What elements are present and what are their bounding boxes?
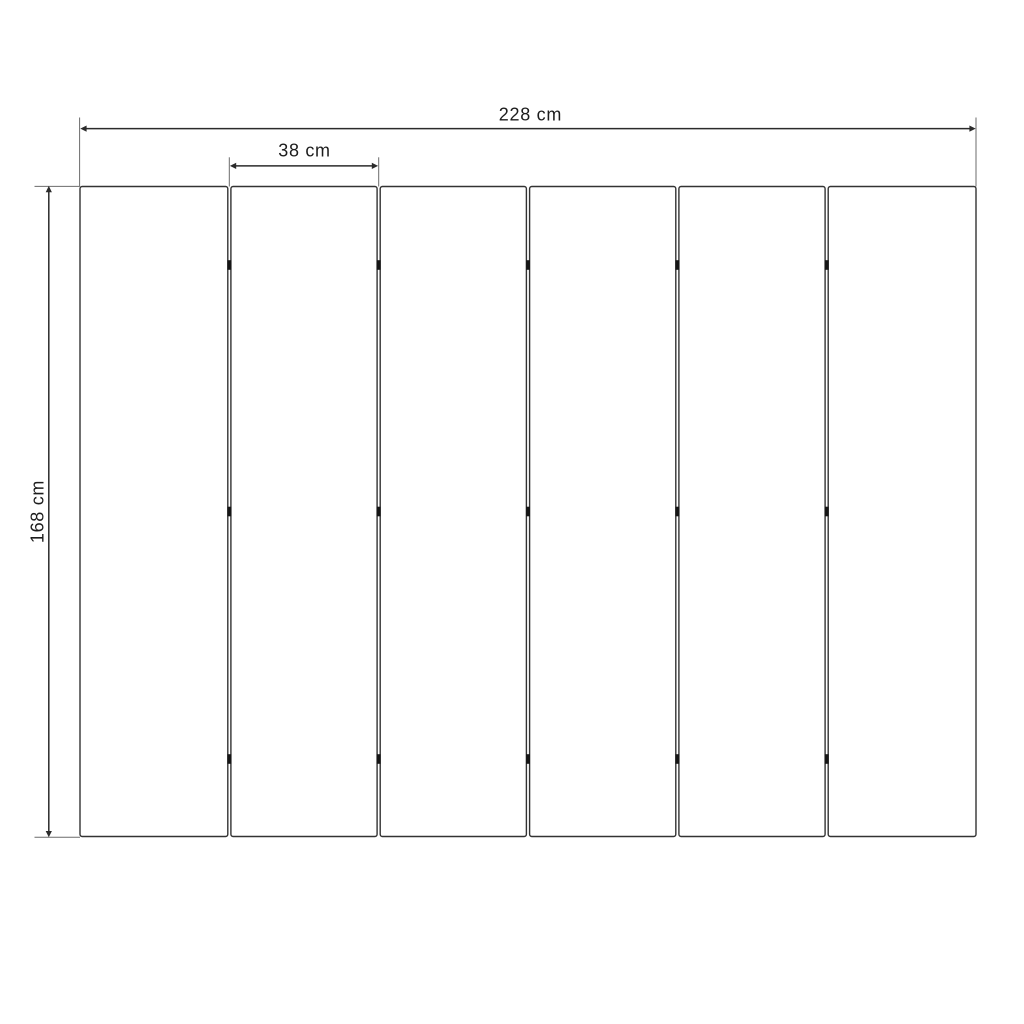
svg-text:38 cm: 38 cm [278,141,331,161]
svg-text:228 cm: 228 cm [499,105,562,125]
svg-text:168 cm: 168 cm [28,480,48,543]
